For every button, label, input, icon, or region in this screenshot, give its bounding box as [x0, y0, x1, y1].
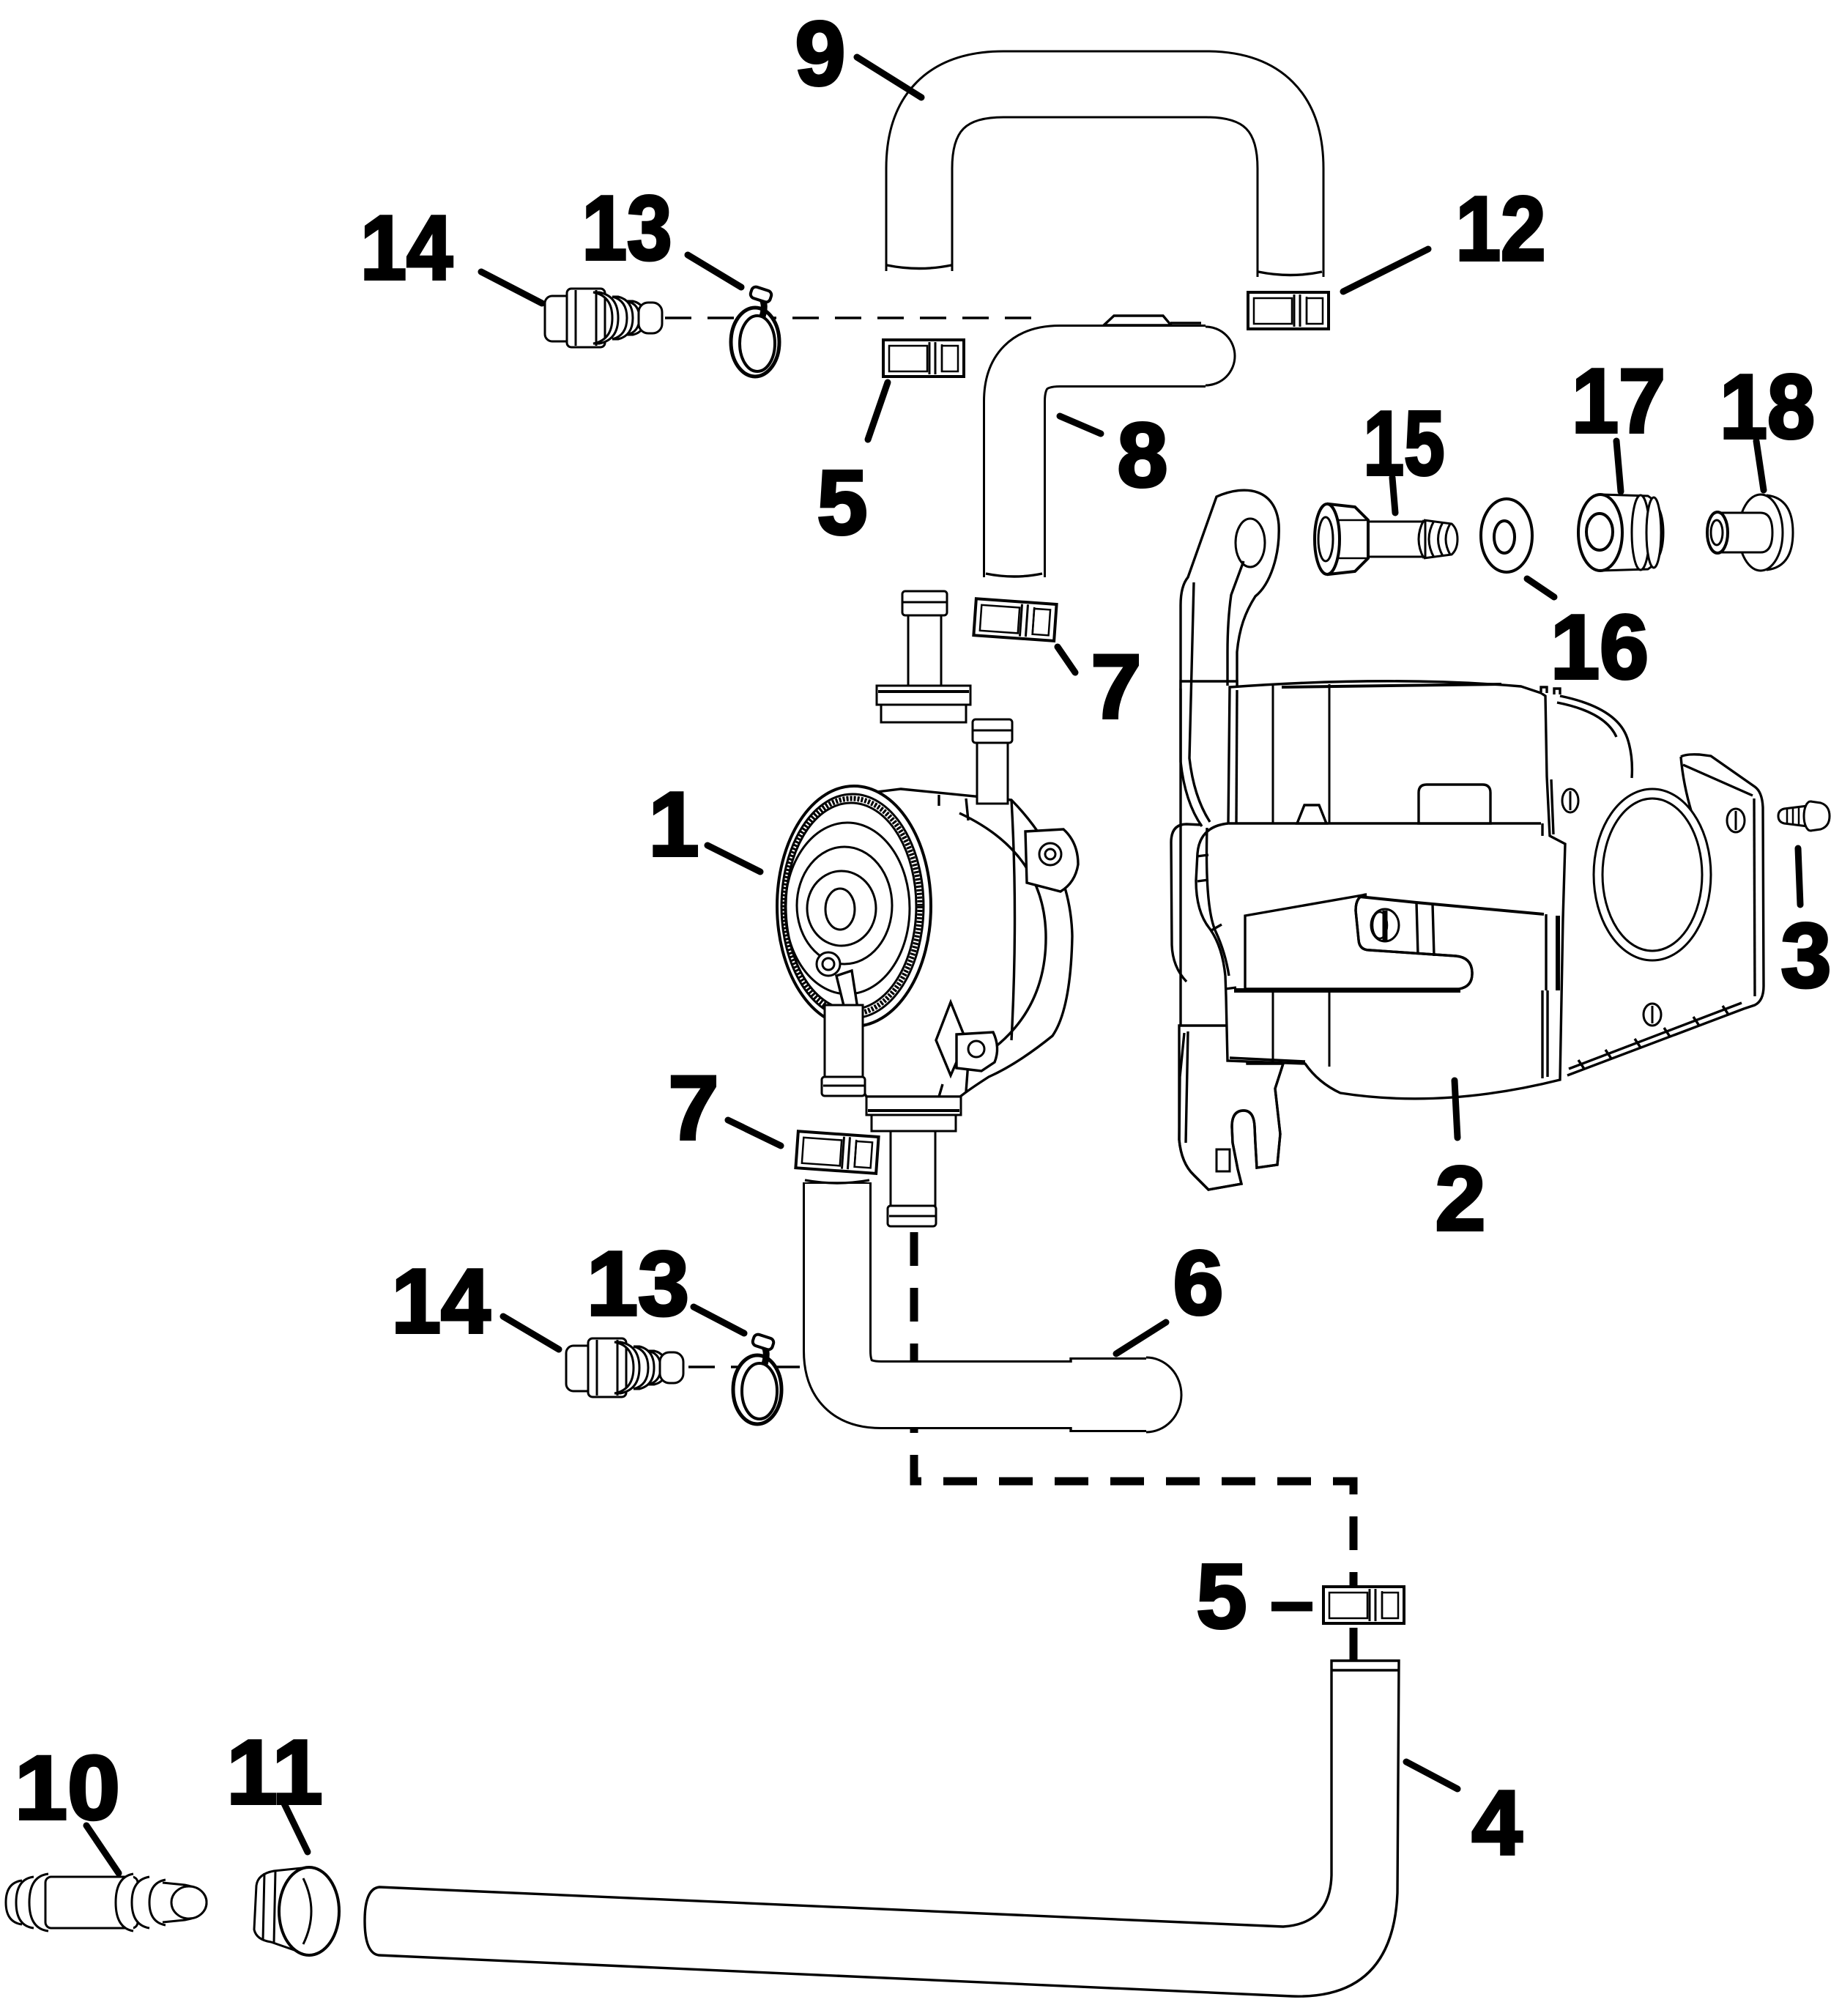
svg-text:10: 10 — [15, 1738, 120, 1839]
svg-text:12: 12 — [1456, 179, 1546, 280]
svg-text:5: 5 — [817, 453, 868, 554]
svg-text:14: 14 — [392, 1251, 491, 1352]
svg-text:6: 6 — [1173, 1233, 1224, 1334]
svg-text:17: 17 — [1572, 351, 1665, 452]
svg-text:7: 7 — [669, 1058, 719, 1159]
svg-text:8: 8 — [1118, 405, 1168, 506]
svg-text:13: 13 — [582, 178, 672, 279]
svg-text:14: 14 — [360, 198, 453, 299]
svg-text:1: 1 — [649, 774, 699, 875]
svg-text:15: 15 — [1364, 393, 1445, 494]
svg-text:18: 18 — [1720, 357, 1815, 458]
svg-text:5: 5 — [1197, 1546, 1247, 1648]
svg-text:11: 11 — [226, 1722, 322, 1823]
svg-text:2: 2 — [1436, 1149, 1486, 1250]
svg-text:4: 4 — [1472, 1773, 1523, 1874]
svg-text:9: 9 — [795, 4, 846, 105]
svg-text:13: 13 — [587, 1234, 689, 1335]
svg-text:7: 7 — [1091, 637, 1142, 738]
svg-text:16: 16 — [1550, 597, 1649, 698]
svg-text:3: 3 — [1781, 905, 1831, 1007]
